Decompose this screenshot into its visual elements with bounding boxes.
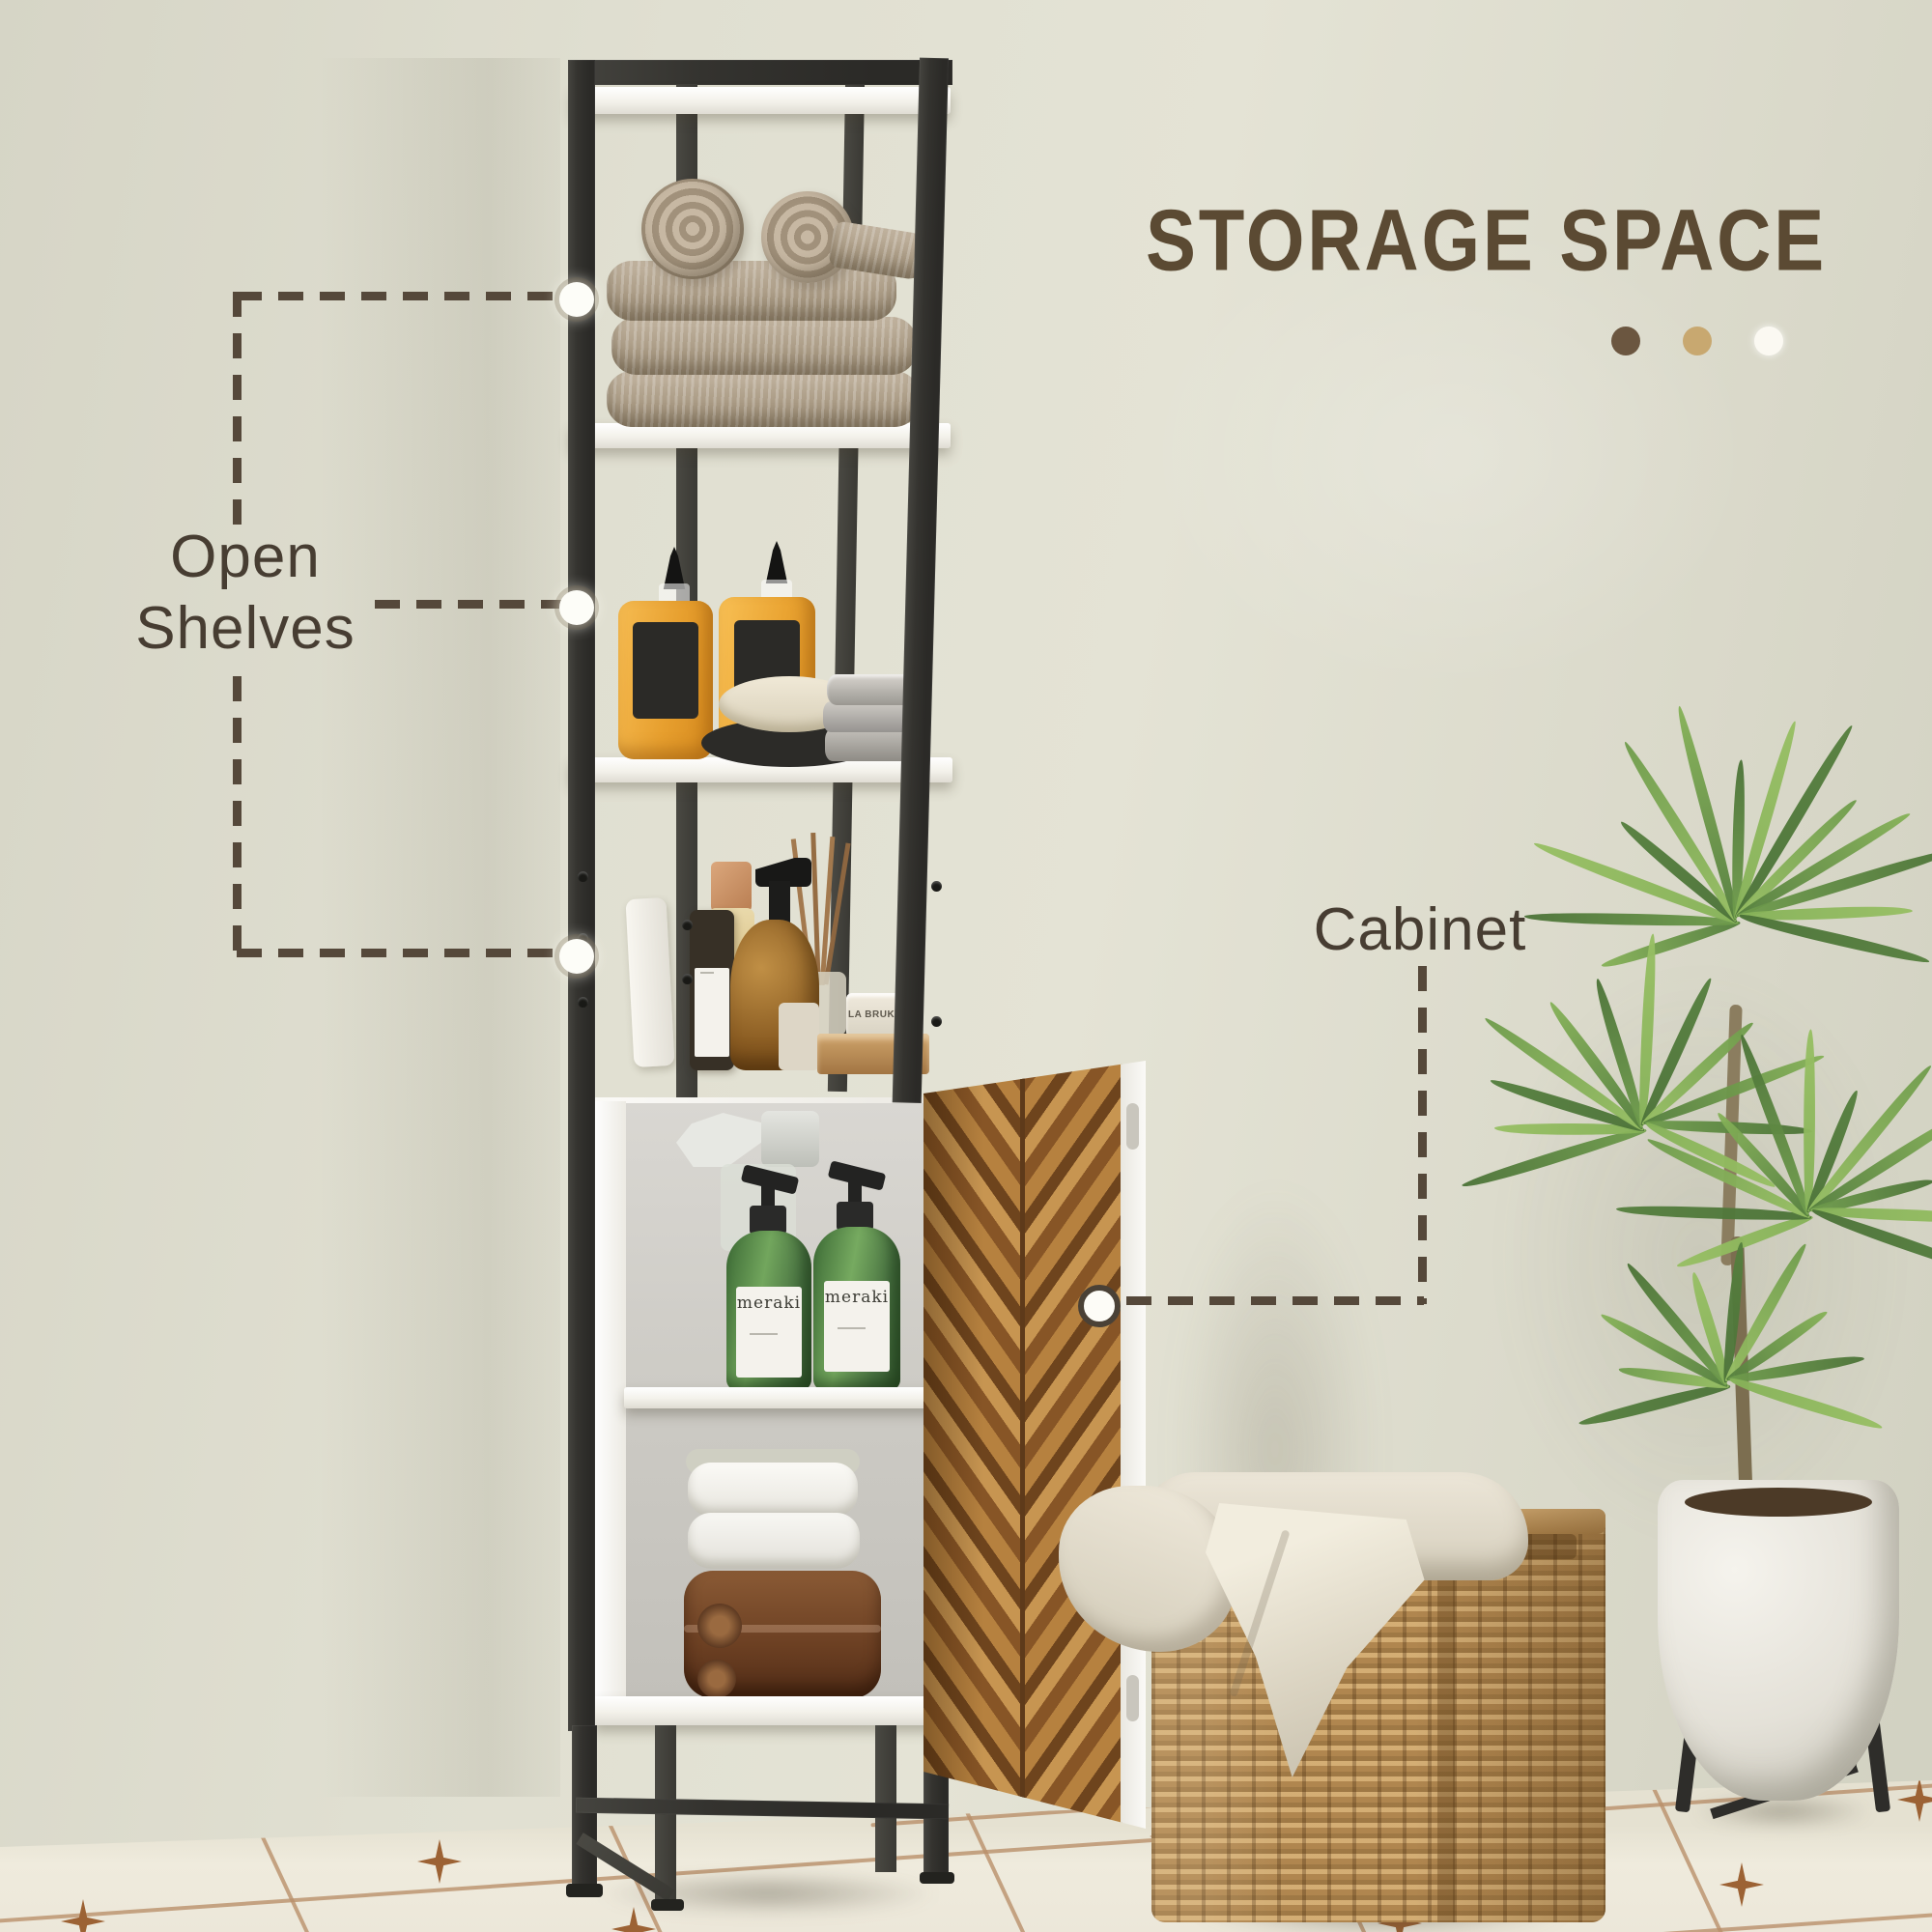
- plant-pot-group: [0, 0, 1932, 1932]
- plant-pot: [1658, 1480, 1899, 1801]
- pot-soil: [1685, 1488, 1872, 1517]
- product-scene: LA BRUKET meraki meraki: [0, 0, 1932, 1932]
